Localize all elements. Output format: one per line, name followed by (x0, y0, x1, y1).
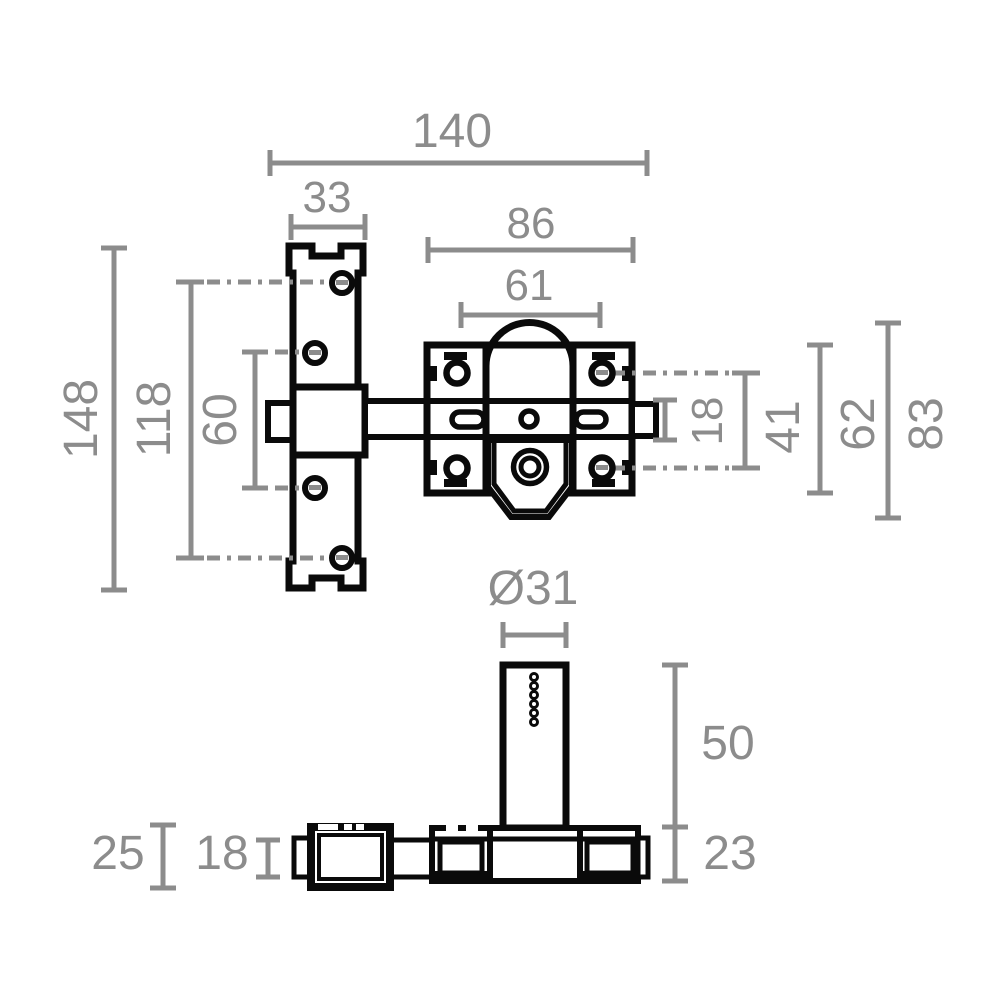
dim-label-bolt-height: 18 (683, 397, 732, 446)
dim-label-body-total-height: 83 (900, 397, 953, 450)
bracket-tab (429, 460, 437, 475)
dim-label-cylinder-length: 50 (701, 717, 754, 770)
hole-centerdash (596, 465, 608, 470)
bolt-housing-block (293, 387, 365, 455)
hidden-edge-dash (356, 824, 364, 830)
hidden-edge-dash (318, 824, 338, 830)
screw-hole (447, 363, 468, 384)
bolt-slot-left (452, 412, 484, 427)
cylinder-bead (531, 710, 538, 717)
cylinder-bead (531, 701, 538, 708)
dim-label-body-height: 62 (832, 397, 885, 450)
dim-label-screw-span-height: 41 (757, 400, 810, 453)
dim-label-screw-span-width: 61 (505, 261, 554, 310)
bolt-keeper-knob (268, 403, 293, 440)
dim-label-keep-hole-span-inner: 60 (194, 393, 247, 446)
cylinder-bead (531, 683, 538, 690)
bracket-tab (592, 352, 615, 360)
bolt-stub (632, 404, 656, 436)
dim-label-keep-width: 33 (303, 173, 352, 222)
dim-label-keep-height: 148 (55, 379, 108, 459)
base-foot-left (432, 871, 490, 882)
hidden-edge-dash (446, 825, 458, 831)
bracket-tab (429, 366, 437, 381)
bracket-tab (444, 352, 467, 360)
hole-centerdash (336, 555, 348, 560)
body-dome (486, 322, 573, 403)
dim-label-keep-hole-span-outer: 118 (128, 381, 181, 458)
dimension-diagram-svg: 140 33 86 61 148 118 60 18 (0, 0, 1000, 1000)
bolt-bar-bottom (391, 840, 435, 877)
bolt-slot-right (576, 412, 606, 427)
bottom-view (294, 665, 648, 887)
screw-hole (447, 458, 468, 479)
cylinder-bead (531, 674, 538, 681)
hole-centerdash (309, 485, 321, 490)
base-extension (638, 838, 648, 877)
dim-label-body-width: 86 (507, 199, 556, 248)
dim-label-keep-depth: 25 (91, 827, 144, 880)
center-pin-hole (521, 411, 537, 427)
dim-label-body-depth: 23 (703, 827, 756, 880)
cylinder-bead (531, 719, 538, 726)
cylinder-ring-inner (521, 458, 539, 476)
technical-drawing: 140 33 86 61 148 118 60 18 (0, 0, 1000, 1000)
dim-label-total-length: 140 (412, 105, 492, 158)
hidden-edge-dash (466, 825, 478, 831)
dim-label-bolt-depth: 18 (195, 827, 248, 880)
base-foot-right (580, 871, 638, 882)
hidden-edge-dash (344, 824, 352, 830)
cylinder-bead (531, 692, 538, 699)
dim-label-cylinder-diameter: Ø31 (488, 562, 579, 615)
hole-centerdash (336, 280, 348, 285)
hole-centerdash (596, 370, 608, 375)
front-view (268, 246, 656, 588)
hole-centerdash (309, 350, 321, 355)
